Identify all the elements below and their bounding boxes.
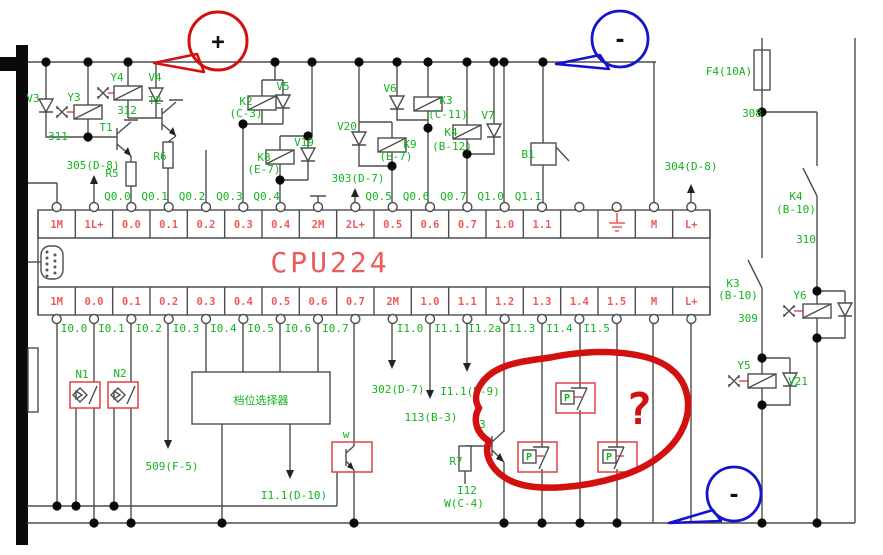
terminal-top-0.1: 0.1: [159, 219, 178, 231]
terminal-pin: [351, 315, 360, 324]
p-switch-label: P: [564, 393, 570, 404]
label-v21: V21: [788, 375, 808, 388]
junction-dot: [575, 518, 584, 527]
label-refi11d9: I1.1(D-9): [440, 385, 500, 398]
diode: [276, 95, 290, 108]
terminal-top-1M: 1M: [50, 219, 63, 231]
terminal-pin: [239, 203, 248, 212]
label-wire308: 308: [742, 107, 762, 120]
terminal-bottom-0.4: 0.4: [234, 296, 253, 308]
terminal-pin: [463, 203, 472, 212]
input-label-I0.4: I0.4: [210, 322, 237, 335]
arrowhead: [426, 390, 434, 399]
minus-bottom-label: -: [727, 483, 740, 508]
label-b1: B1: [521, 148, 534, 161]
manual-override-x: [98, 87, 114, 99]
input-label-I1.5: I1.5: [583, 322, 610, 335]
label-t1: T1: [99, 121, 112, 134]
junction-dot: [109, 501, 118, 510]
label-n1: N1: [75, 368, 88, 381]
label-refi11d10: I1.1(D-10): [261, 489, 327, 502]
red-annotation-circle: [476, 352, 688, 488]
diode: [301, 148, 315, 161]
output-label-Q0.3: Q0.3: [216, 190, 243, 203]
label-k4: K4: [444, 126, 458, 139]
db9-pin: [54, 260, 57, 263]
label-v5: V5: [276, 80, 289, 93]
terminal-pin: [537, 203, 546, 212]
label-k9loc: (E-7): [379, 150, 412, 163]
output-label-Q1.0: Q1.0: [477, 190, 504, 203]
terminal-top-0.4: 0.4: [271, 219, 290, 231]
terminal-top-2M: 2M: [312, 219, 325, 231]
diode: [487, 124, 501, 137]
junction-dot: [489, 57, 498, 66]
terminal-bottom-1.4: 1.4: [570, 296, 589, 308]
junction-dot: [270, 57, 279, 66]
db9-pin: [54, 266, 57, 269]
label-ref509: 509(F-5): [146, 460, 199, 473]
arrowhead: [687, 184, 695, 193]
junction-dot: [423, 57, 432, 66]
junction-dot: [83, 57, 92, 66]
label-ref303: 303(D-7): [332, 172, 385, 185]
label-t2: T2: [148, 94, 161, 107]
junction-dot: [307, 57, 316, 66]
minus-balloon-bottom: -: [669, 467, 761, 523]
junction-dot: [757, 518, 766, 527]
left-border-bar: [16, 45, 28, 545]
label-y6: Y6: [793, 289, 806, 302]
label-y5: Y5: [737, 359, 750, 372]
junction-dot: [123, 57, 132, 66]
junction-dot: [537, 518, 546, 527]
input-label-I0.2: I0.2: [135, 322, 162, 335]
terminal-bottom-1.0: 1.0: [421, 296, 440, 308]
transistor-t3: [492, 431, 504, 462]
terminal-top-0.6: 0.6: [421, 219, 440, 231]
terminal-pin: [575, 203, 584, 212]
label-wire309: 309: [738, 312, 758, 325]
relay-coil: [803, 304, 831, 318]
output-label-Q0.4: Q0.4: [253, 190, 280, 203]
arrowhead: [463, 363, 471, 372]
terminal-top-1L+: 1L+: [85, 219, 104, 231]
left-border-notch: [0, 57, 16, 71]
label-wc4: W(C-4): [444, 497, 484, 510]
terminal-top-0.7: 0.7: [458, 219, 477, 231]
db9-pin: [46, 263, 49, 266]
terminal-pin: [351, 203, 360, 212]
label-k3bloc: (B-10): [718, 289, 758, 302]
manual-override-x: [57, 106, 74, 118]
arrowhead: [90, 175, 98, 184]
terminal-pin: [649, 203, 658, 212]
db9-pin: [46, 251, 49, 254]
db9-pin: [54, 272, 57, 275]
junction-dot: [423, 123, 432, 132]
input-label-I1.1: I1.1: [434, 322, 461, 335]
terminal-pin: [89, 203, 98, 212]
terminal-bottom-0.3: 0.3: [197, 296, 216, 308]
label-ref302: 302(D-7): [372, 383, 425, 396]
terminal-top-M: M: [651, 219, 657, 231]
input-label-I1.0: I1.0: [397, 322, 424, 335]
junction-dot: [238, 119, 247, 128]
terminal-bottom-0.2: 0.2: [159, 296, 178, 308]
input-label-I1.2a: I1.2a: [468, 322, 501, 335]
output-label-Q0.7: Q0.7: [440, 190, 467, 203]
label-r6: R6: [153, 150, 166, 163]
diode: [352, 132, 366, 145]
transistor-t1: [117, 120, 138, 156]
terminal-pin: [649, 315, 658, 324]
input-label-I0.5: I0.5: [247, 322, 274, 335]
terminal-pin: [388, 203, 397, 212]
output-label-Q0.6: Q0.6: [403, 190, 430, 203]
label-i12: I12: [457, 484, 477, 497]
input-label-I0.7: I0.7: [322, 322, 349, 335]
transistor-w: [346, 446, 354, 470]
terminal-top-1.1: 1.1: [533, 219, 552, 231]
label-n2: N2: [113, 367, 126, 380]
label-wire312: 312: [117, 104, 137, 117]
plc-wiring-schematic: P P P CPU224 1M1L+0.00.10.20.30.42M: [0, 0, 883, 555]
output-label-Q0.0: Q0.0: [104, 190, 131, 203]
label-k4bloc: (B-10): [776, 203, 816, 216]
terminal-bottom-0.0: 0.0: [85, 296, 104, 308]
label-y3: Y3: [67, 91, 80, 104]
label-y4: Y4: [110, 71, 124, 84]
terminal-top-2L+: 2L+: [346, 219, 365, 231]
terminal-pin: [52, 203, 61, 212]
terminal-pin: [687, 203, 696, 212]
input-label-I0.0: I0.0: [61, 322, 88, 335]
arrowhead: [164, 440, 172, 449]
junction-dot: [126, 518, 135, 527]
input-label-I0.1: I0.1: [98, 322, 125, 335]
db9-pin: [54, 254, 57, 257]
terminal-pin: [164, 203, 173, 212]
label-gear: 档位选择器: [234, 393, 289, 407]
label-wire311: 311: [48, 130, 68, 143]
label-k3loc: (C-11): [428, 108, 468, 121]
label-ref113: 113(B-3): [405, 411, 458, 424]
label-v3: V3: [26, 92, 39, 105]
junction-dot: [83, 132, 92, 141]
junction-dot: [812, 286, 821, 295]
terminal-bottom-1.1: 1.1: [458, 296, 477, 308]
terminal-bottom-0.5: 0.5: [271, 296, 290, 308]
label-wlabel: w: [343, 428, 350, 441]
resistor-r5: [126, 162, 136, 186]
label-v7: V7: [481, 109, 494, 122]
junction-dot: [217, 518, 226, 527]
junction-dot: [71, 501, 80, 510]
plus-balloon-label: +: [211, 30, 224, 55]
terminal-bottom-2M: 2M: [386, 296, 399, 308]
terminal-pin: [612, 315, 621, 324]
terminal-pin: [612, 203, 621, 212]
output-label-Q0.2: Q0.2: [179, 190, 206, 203]
input-label-I0.3: I0.3: [173, 322, 200, 335]
label-k3: K3: [439, 94, 452, 107]
label-ref305: 305(D-8): [67, 159, 120, 172]
p-switch-label: P: [606, 452, 612, 463]
sensor-n2: [108, 382, 138, 408]
p-switch-box-1: P: [556, 383, 595, 413]
db9-pin: [46, 269, 49, 272]
label-f4: F4(10A): [706, 65, 752, 78]
question-mark-annotation: ?: [626, 384, 653, 435]
relay-coil: [748, 374, 776, 388]
manual-override-x: [784, 305, 803, 317]
label-k4b: K4: [789, 190, 803, 203]
terminal-pin: [276, 203, 285, 212]
p-switch-label: P: [526, 452, 532, 463]
terminal-bottom-0.1: 0.1: [122, 296, 141, 308]
relay-coil: [74, 105, 102, 119]
screenshot-root: P P P CPU224 1M1L+0.00.10.20.30.42M: [0, 0, 883, 555]
junction-dot: [349, 518, 358, 527]
diode: [39, 99, 53, 112]
junction-dot: [499, 57, 508, 66]
arrowhead: [388, 360, 396, 369]
terminal-bottom-1M: 1M: [50, 296, 63, 308]
label-ref304: 304(D-8): [665, 160, 718, 173]
label-v20: V20: [337, 120, 357, 133]
minus-top-label: -: [613, 28, 626, 53]
terminal-bottom-0.6: 0.6: [309, 296, 328, 308]
plus-balloon: +: [154, 12, 247, 72]
minus-balloon-top: -: [556, 11, 648, 69]
junction-dot: [757, 353, 766, 362]
terminal-pin: [313, 203, 322, 212]
sheet-frame: [0, 45, 38, 545]
label-k8loc: (E-7): [247, 163, 280, 176]
device-b1: [531, 143, 569, 165]
terminal-top-0.0: 0.0: [122, 219, 141, 231]
terminal-bottom-M: M: [651, 296, 657, 308]
terminal-bottom-1.2: 1.2: [495, 296, 514, 308]
terminal-pin: [127, 203, 136, 212]
terminal-bottom-0.7: 0.7: [346, 296, 365, 308]
terminal-pin: [201, 203, 210, 212]
terminal-top-1.0: 1.0: [495, 219, 514, 231]
junction-dot: [812, 333, 821, 342]
junction-dot: [462, 57, 471, 66]
cpu-title: CPU224: [270, 246, 389, 279]
junction-dot: [612, 518, 621, 527]
label-k2loc: (C-3): [229, 107, 262, 120]
junction-dot: [757, 400, 766, 409]
terminal-bottom-1.3: 1.3: [533, 296, 552, 308]
junction-dot: [354, 57, 363, 66]
input-label-I0.6: I0.6: [285, 322, 312, 335]
label-v4: V4: [148, 71, 162, 84]
terminal-bottom-1.5: 1.5: [607, 296, 626, 308]
junction-dot: [89, 518, 98, 527]
db9-pin: [46, 275, 49, 278]
label-v6: V6: [383, 82, 396, 95]
p-switch-box-2: P: [518, 442, 557, 472]
output-label-Q1.1: Q1.1: [515, 190, 542, 203]
terminal-bottom-L+: L+: [685, 296, 698, 308]
bar-connector: [28, 348, 38, 412]
junction-dot: [538, 57, 547, 66]
junction-dot: [392, 57, 401, 66]
terminal-top-L+: L+: [685, 219, 698, 231]
label-wire310: 310: [796, 233, 816, 246]
terminal-top-0.2: 0.2: [197, 219, 216, 231]
terminal-top-0.3: 0.3: [234, 219, 253, 231]
terminal-pin: [687, 315, 696, 324]
manual-override-x: [729, 375, 748, 387]
terminal-top-0.5: 0.5: [383, 219, 402, 231]
diode: [838, 303, 852, 316]
label-r7: R7: [449, 455, 462, 468]
junction-dot: [812, 518, 821, 527]
output-label-Q0.1: Q0.1: [141, 190, 168, 203]
arrowhead: [351, 188, 359, 197]
output-label-Q0.5: Q0.5: [365, 190, 392, 203]
transistor-t2: [162, 100, 183, 136]
input-label-I1.4: I1.4: [546, 322, 573, 335]
junction-dot: [275, 175, 284, 184]
diode: [390, 96, 404, 109]
fuse-f4: [754, 50, 770, 90]
sensor-n1: [70, 382, 100, 408]
arrowhead: [286, 470, 294, 479]
junction-dot: [499, 518, 508, 527]
label-v19: V19: [294, 136, 314, 149]
p-switch-box-3: P: [598, 442, 637, 472]
junction-dot: [41, 57, 50, 66]
relay-coil: [114, 86, 142, 100]
db9-pin: [46, 257, 49, 260]
junction-dot: [52, 501, 61, 510]
terminal-pin: [500, 203, 509, 212]
label-k4loc: (B-12): [432, 140, 472, 153]
input-label-I1.3: I1.3: [509, 322, 536, 335]
input-labels: I0.0I0.1I0.2I0.3I0.4I0.5I0.6I0.7I1.0I1.1…: [61, 322, 610, 335]
terminal-pin: [425, 203, 434, 212]
